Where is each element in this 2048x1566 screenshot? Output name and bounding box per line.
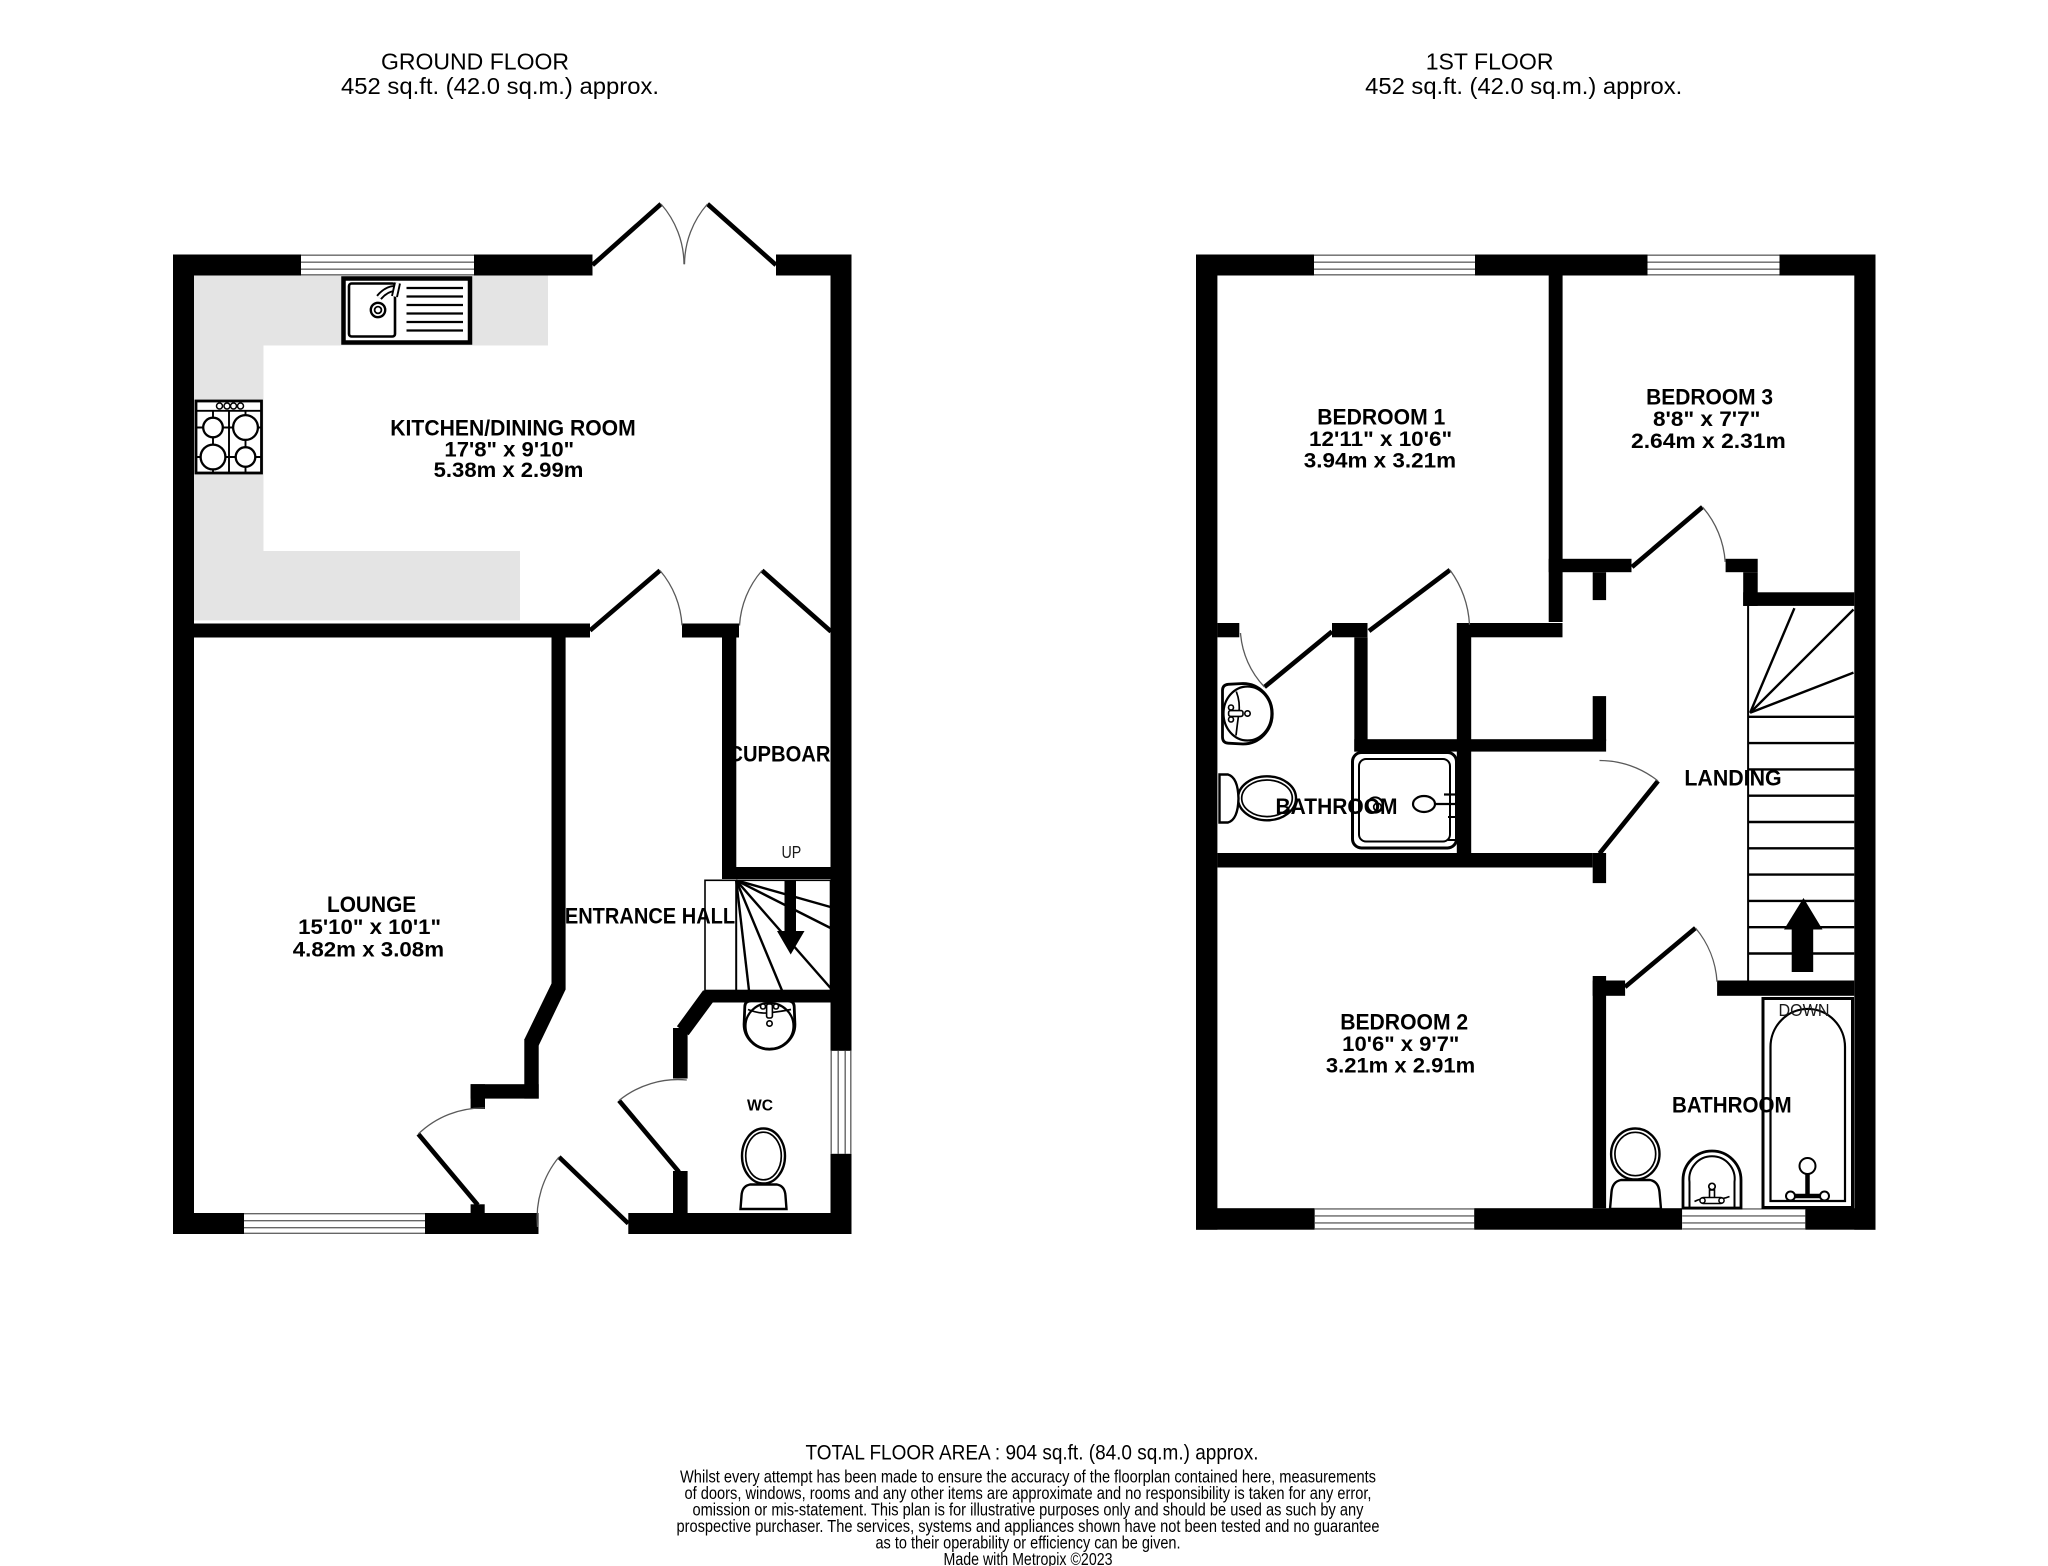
svg-text:ENTRANCE HALL: ENTRANCE HALL	[565, 903, 736, 928]
svg-text:8'8" x 7'7": 8'8" x 7'7"	[1653, 408, 1760, 431]
svg-text:GROUND FLOOR: GROUND FLOOR	[381, 49, 569, 75]
svg-text:452 sq.ft. (42.0 sq.m.) approx: 452 sq.ft. (42.0 sq.m.) approx.	[341, 73, 659, 99]
svg-text:WC: WC	[747, 1098, 773, 1115]
svg-text:KITCHEN/DINING ROOM: KITCHEN/DINING ROOM	[390, 416, 635, 441]
svg-text:1ST FLOOR: 1ST FLOOR	[1426, 49, 1554, 75]
svg-text:UP: UP	[782, 842, 802, 862]
svg-text:3.21m x 2.91m: 3.21m x 2.91m	[1326, 1055, 1475, 1078]
svg-text:4.82m x 3.08m: 4.82m x 3.08m	[293, 938, 444, 961]
svg-text:3.94m x 3.21m: 3.94m x 3.21m	[1304, 449, 1456, 472]
svg-text:Made with Metropix ©2023: Made with Metropix ©2023	[944, 1549, 1113, 1566]
svg-text:17'8" x 9'10": 17'8" x 9'10"	[444, 438, 574, 461]
svg-text:12'11" x 10'6": 12'11" x 10'6"	[1309, 428, 1452, 451]
svg-text:CUPBOARD: CUPBOARD	[728, 742, 845, 767]
svg-text:2.64m x 2.31m: 2.64m x 2.31m	[1631, 430, 1786, 453]
svg-text:5.38m x 2.99m: 5.38m x 2.99m	[434, 459, 584, 482]
svg-text:TOTAL FLOOR AREA : 904 sq.ft.: TOTAL FLOOR AREA : 904 sq.ft. (84.0 sq.m…	[806, 1441, 1259, 1465]
svg-text:LANDING: LANDING	[1684, 766, 1781, 791]
svg-text:BEDROOM 1: BEDROOM 1	[1317, 404, 1445, 429]
svg-text:BEDROOM 2: BEDROOM 2	[1340, 1010, 1468, 1035]
svg-text:BEDROOM 3: BEDROOM 3	[1646, 384, 1773, 409]
svg-text:452 sq.ft. (42.0 sq.m.) approx: 452 sq.ft. (42.0 sq.m.) approx.	[1365, 73, 1682, 99]
svg-text:LOUNGE: LOUNGE	[327, 892, 416, 917]
svg-text:BATHROOM: BATHROOM	[1672, 1093, 1792, 1118]
svg-text:BATHROOM: BATHROOM	[1276, 794, 1398, 819]
svg-text:10'6" x 9'7": 10'6" x 9'7"	[1342, 1033, 1459, 1056]
svg-text:15'10" x 10'1": 15'10" x 10'1"	[298, 916, 441, 939]
svg-text:DOWN: DOWN	[1779, 1000, 1830, 1020]
